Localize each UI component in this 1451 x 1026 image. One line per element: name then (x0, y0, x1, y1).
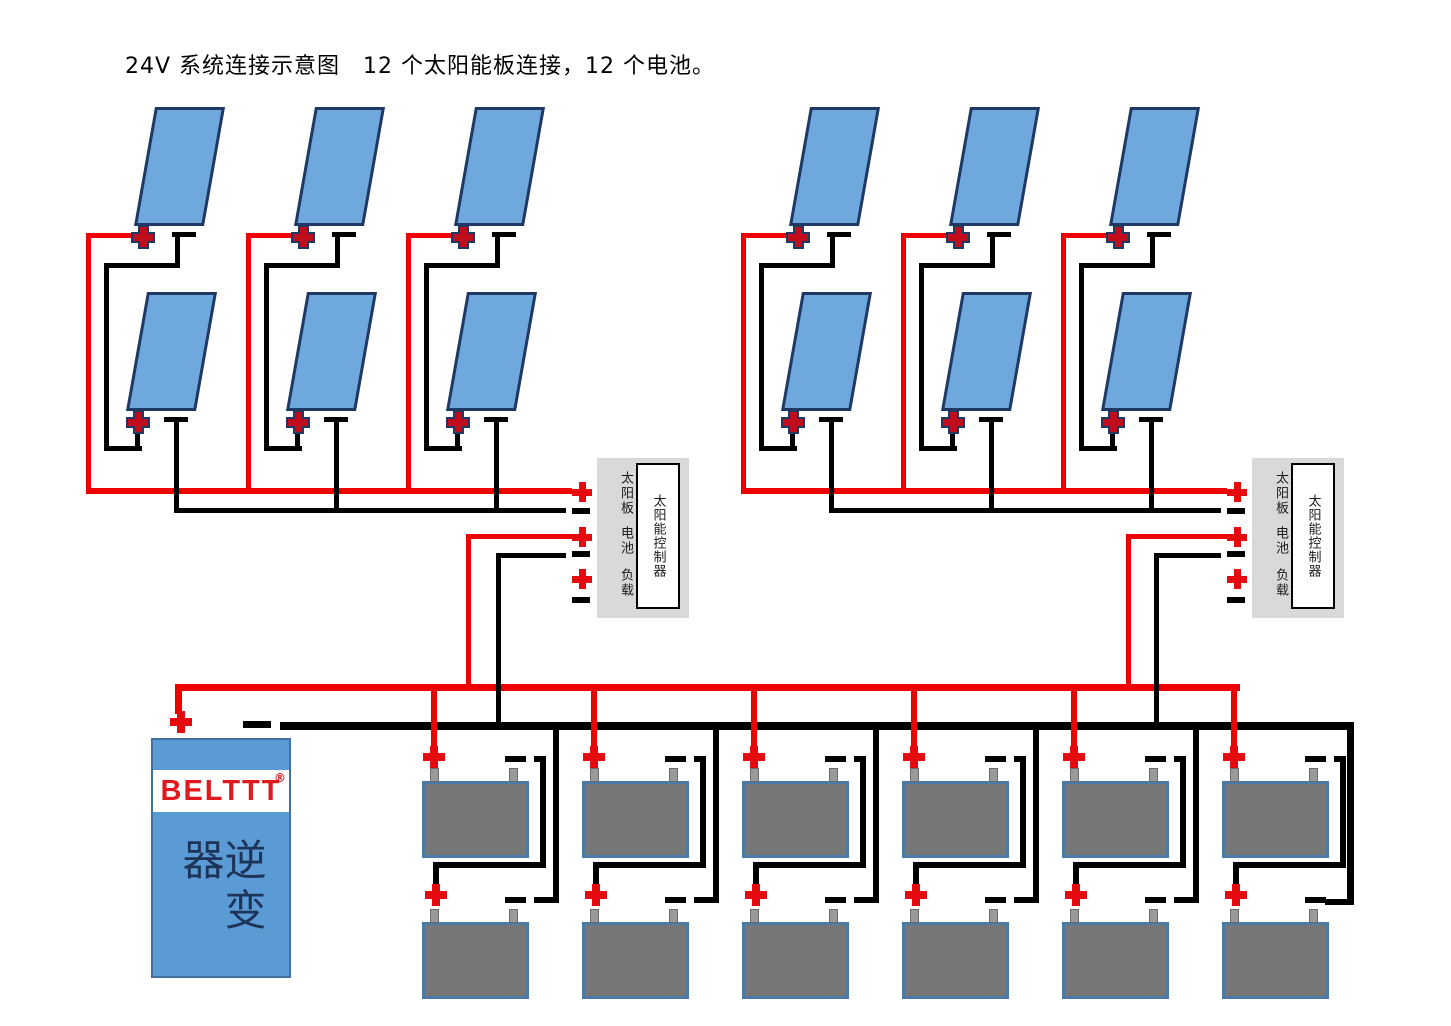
battery-post (430, 909, 439, 923)
wire-negative-segment (174, 421, 179, 513)
wire-negative-segment (1233, 866, 1239, 886)
solar-panel (126, 292, 217, 411)
panel-plus-terminal (955, 227, 962, 247)
solar-controller-left: 太阳板 电池 负载 太阳能控制器 (597, 458, 689, 618)
battery-minus-terminal (1305, 897, 1326, 903)
wire-negative-segment (919, 263, 924, 451)
battery-minus-terminal (665, 756, 686, 762)
solar-panel (949, 107, 1040, 226)
wire-negative-segment (424, 263, 429, 451)
battery-post (910, 909, 919, 923)
battery-plus-terminal (1230, 746, 1238, 768)
panel-plus-terminal (135, 412, 142, 432)
wire-positive-segment (246, 233, 294, 238)
battery-minus-terminal (505, 756, 526, 762)
battery-plus-terminal (752, 884, 760, 906)
controller-minus-terminal (572, 508, 590, 514)
solar-panel (294, 107, 385, 226)
wire-positive-segment (911, 684, 917, 746)
solar-panel (781, 292, 872, 411)
battery-minus-terminal (985, 756, 1006, 762)
wire-negative-segment (553, 722, 559, 903)
wire-positive-segment (1126, 534, 1227, 539)
wire-negative-segment (1079, 263, 1084, 451)
wire-negative-segment (1180, 756, 1186, 866)
wire-positive-segment (246, 233, 251, 494)
solar-panel (446, 292, 537, 411)
wiring-diagram: 24V 系统连接示意图 12 个太阳能板连接，12 个电池。 太阳板 电池 负载… (0, 0, 1451, 1026)
wire-negative-segment (700, 756, 706, 866)
wire-negative-segment (1020, 756, 1026, 866)
battery-plus-terminal (1072, 884, 1080, 906)
battery-post (590, 768, 599, 782)
wire-negative-segment (334, 421, 339, 513)
battery-post (829, 909, 838, 923)
solar-panel (454, 107, 545, 226)
battery (742, 781, 849, 858)
battery-minus-terminal (825, 897, 846, 903)
wire-negative-segment (496, 553, 501, 730)
battery-plus-terminal (592, 884, 600, 906)
battery-plus-terminal (912, 884, 920, 906)
panel-plus-terminal (140, 227, 147, 247)
battery-post (1149, 768, 1158, 782)
battery-post (1230, 768, 1239, 782)
battery-post (1149, 909, 1158, 923)
wire-positive-segment (741, 233, 746, 494)
solar-controller-right: 太阳板 电池 负载 太阳能控制器 (1252, 458, 1344, 618)
wire-positive-segment (86, 233, 134, 238)
controller-port-battery-label: 电池 (597, 526, 635, 556)
battery-post (509, 768, 518, 782)
controller-body: 太阳能控制器 (1291, 463, 1335, 609)
registered-trademark-icon: ® (274, 771, 286, 785)
wire-negative-segment (433, 862, 546, 868)
battery-plus-terminal (432, 884, 440, 906)
battery-plus-terminal (1070, 746, 1078, 768)
wire-negative-segment (873, 722, 879, 903)
battery-post (669, 909, 678, 923)
battery-post (1230, 909, 1239, 923)
battery (1062, 922, 1169, 999)
wire-negative-segment (1340, 756, 1346, 866)
battery (1062, 781, 1169, 858)
wire-positive-segment (751, 684, 757, 746)
battery-minus-terminal (985, 897, 1006, 903)
wire-negative-segment (1154, 553, 1159, 730)
wire-negative-segment (759, 263, 764, 451)
battery-post (989, 909, 998, 923)
pv-positive-collector (741, 488, 1227, 494)
panel-plus-terminal (795, 227, 802, 247)
solar-panel (789, 107, 880, 226)
battery-minus-terminal (1145, 756, 1166, 762)
controller-port-load-label: 负载 (597, 568, 635, 598)
solar-panel (134, 107, 225, 226)
wire-positive-segment (86, 233, 91, 494)
battery-post (750, 768, 759, 782)
controller-minus-terminal (1227, 508, 1245, 514)
wire-negative-segment (860, 756, 866, 866)
battery (422, 922, 529, 999)
battery (1222, 922, 1329, 999)
battery (422, 781, 529, 858)
battery-post (989, 768, 998, 782)
wire-negative-segment (1073, 862, 1186, 868)
battery-post (910, 768, 919, 782)
wire-negative-segment (1149, 421, 1154, 513)
battery-minus-terminal (1305, 756, 1326, 762)
controller-name-label: 太阳能控制器 (1304, 494, 1323, 578)
wire-positive-segment (1126, 534, 1131, 689)
diagram-title: 24V 系统连接示意图 12 个太阳能板连接，12 个电池。 (125, 48, 715, 80)
negative-bus-end-link (1325, 899, 1351, 905)
controller-port-solar-label: 太阳板 (1252, 471, 1290, 516)
solar-panel (941, 292, 1032, 411)
wire-positive-segment (431, 684, 437, 746)
battery (742, 922, 849, 999)
wire-positive-segment (466, 534, 471, 689)
positive-bus (175, 684, 1240, 691)
solar-panel (1101, 292, 1192, 411)
panel-plus-terminal (790, 412, 797, 432)
controller-minus-terminal (572, 551, 590, 557)
wire-positive-segment (466, 534, 572, 539)
panel-plus-terminal (950, 412, 957, 432)
battery-post (1070, 768, 1079, 782)
wire-positive-segment (1231, 684, 1237, 746)
battery (582, 781, 689, 858)
controller-plus-terminal (579, 482, 586, 502)
battery-post (1070, 909, 1079, 923)
battery-plus-terminal (750, 746, 758, 768)
battery-post (590, 909, 599, 923)
controller-plus-terminal (1234, 527, 1241, 547)
inverter-brand-logo: BELTTT (161, 775, 282, 808)
wire-negative-segment (593, 862, 706, 868)
battery-plus-terminal (590, 746, 598, 768)
battery-post (669, 768, 678, 782)
battery-minus-terminal (825, 756, 846, 762)
battery-post (1309, 909, 1318, 923)
battery-plus-terminal (1232, 884, 1240, 906)
wire-negative-segment (989, 421, 994, 513)
battery (1222, 781, 1329, 858)
wire-negative-segment (759, 263, 835, 268)
wire-negative-segment (913, 862, 1026, 868)
wire-negative-segment (335, 237, 340, 266)
wire-negative-segment (264, 263, 340, 268)
battery-post (1309, 768, 1318, 782)
controller-plus-terminal (579, 569, 586, 589)
wire-positive-segment (591, 684, 597, 746)
wire-positive-segment (406, 233, 411, 494)
controller-port-solar-label: 太阳板 (597, 471, 635, 516)
inverter: BELTTT ® 逆变器 (151, 738, 291, 978)
panel-plus-terminal (1115, 227, 1122, 247)
wire-positive-segment (901, 233, 949, 238)
wire-negative-segment (990, 237, 995, 266)
wire-negative-segment (264, 263, 269, 451)
controller-minus-terminal (1227, 597, 1245, 603)
wire-positive-segment (1071, 684, 1077, 746)
solar-panel (1109, 107, 1200, 226)
battery (902, 922, 1009, 999)
wire-negative-segment (433, 866, 439, 886)
panel-plus-terminal (295, 412, 302, 432)
wire-negative-segment (713, 722, 719, 903)
controller-plus-terminal (1234, 569, 1241, 589)
wire-negative-segment (104, 263, 109, 451)
battery (582, 922, 689, 999)
battery-minus-terminal (1145, 897, 1166, 903)
wire-negative-segment (1073, 866, 1079, 886)
pv-negative-collector (174, 508, 566, 513)
pv-negative-collector (829, 508, 1221, 513)
battery (902, 781, 1009, 858)
wire-positive-segment (901, 233, 906, 494)
controller-plus-terminal (579, 527, 586, 547)
inverter-name-label: 逆变器 (179, 838, 263, 976)
wire-negative-segment (104, 263, 180, 268)
battery-post (750, 909, 759, 923)
wire-negative-segment (753, 862, 866, 868)
wire-negative-segment (829, 421, 834, 513)
wire-negative-segment (1233, 862, 1346, 868)
battery-plus-terminal (430, 746, 438, 768)
controller-name-label: 太阳能控制器 (649, 494, 668, 578)
wire-negative-segment (1079, 263, 1155, 268)
panel-plus-terminal (455, 412, 462, 432)
wire-negative-segment (1150, 237, 1155, 266)
wire-negative-segment (830, 237, 835, 266)
battery-post (829, 768, 838, 782)
panel-plus-terminal (300, 227, 307, 247)
pv-positive-collector (86, 488, 572, 494)
wire-negative-segment (1154, 553, 1221, 558)
negative-bus-end-drop (1347, 722, 1354, 905)
controller-port-load-label: 负载 (1252, 568, 1290, 598)
panel-plus-terminal (1110, 412, 1117, 432)
wire-positive-segment (741, 233, 789, 238)
wire-negative-segment (1193, 722, 1199, 903)
controller-minus-terminal (572, 597, 590, 603)
controller-body: 太阳能控制器 (636, 463, 680, 609)
wire-positive-segment (1061, 233, 1109, 238)
inverter-minus-terminal (243, 721, 271, 728)
wire-negative-segment (175, 237, 180, 266)
battery-plus-terminal (910, 746, 918, 768)
solar-panel (286, 292, 377, 411)
wire-negative-segment (494, 421, 499, 513)
wire-negative-segment (919, 263, 995, 268)
battery-minus-terminal (505, 897, 526, 903)
wire-negative-segment (496, 553, 566, 558)
wire-negative-segment (593, 866, 599, 886)
wire-positive-segment (406, 233, 454, 238)
wire-negative-segment (753, 866, 759, 886)
battery-post (430, 768, 439, 782)
controller-plus-terminal (1234, 482, 1241, 502)
panel-plus-terminal (460, 227, 467, 247)
battery-post (509, 909, 518, 923)
battery-minus-terminal (665, 897, 686, 903)
controller-port-battery-label: 电池 (1252, 526, 1290, 556)
wire-negative-segment (1033, 722, 1039, 903)
wire-negative-segment (495, 237, 500, 266)
controller-minus-terminal (1227, 551, 1245, 557)
wire-negative-segment (913, 866, 919, 886)
wire-positive-segment (1061, 233, 1066, 494)
inverter-brand-band: BELTTT ® (153, 770, 289, 812)
wire-negative-segment (424, 263, 500, 268)
inverter-plus-terminal (177, 711, 185, 733)
wire-negative-segment (540, 756, 546, 866)
positive-bus-drop-inverter (175, 684, 182, 714)
